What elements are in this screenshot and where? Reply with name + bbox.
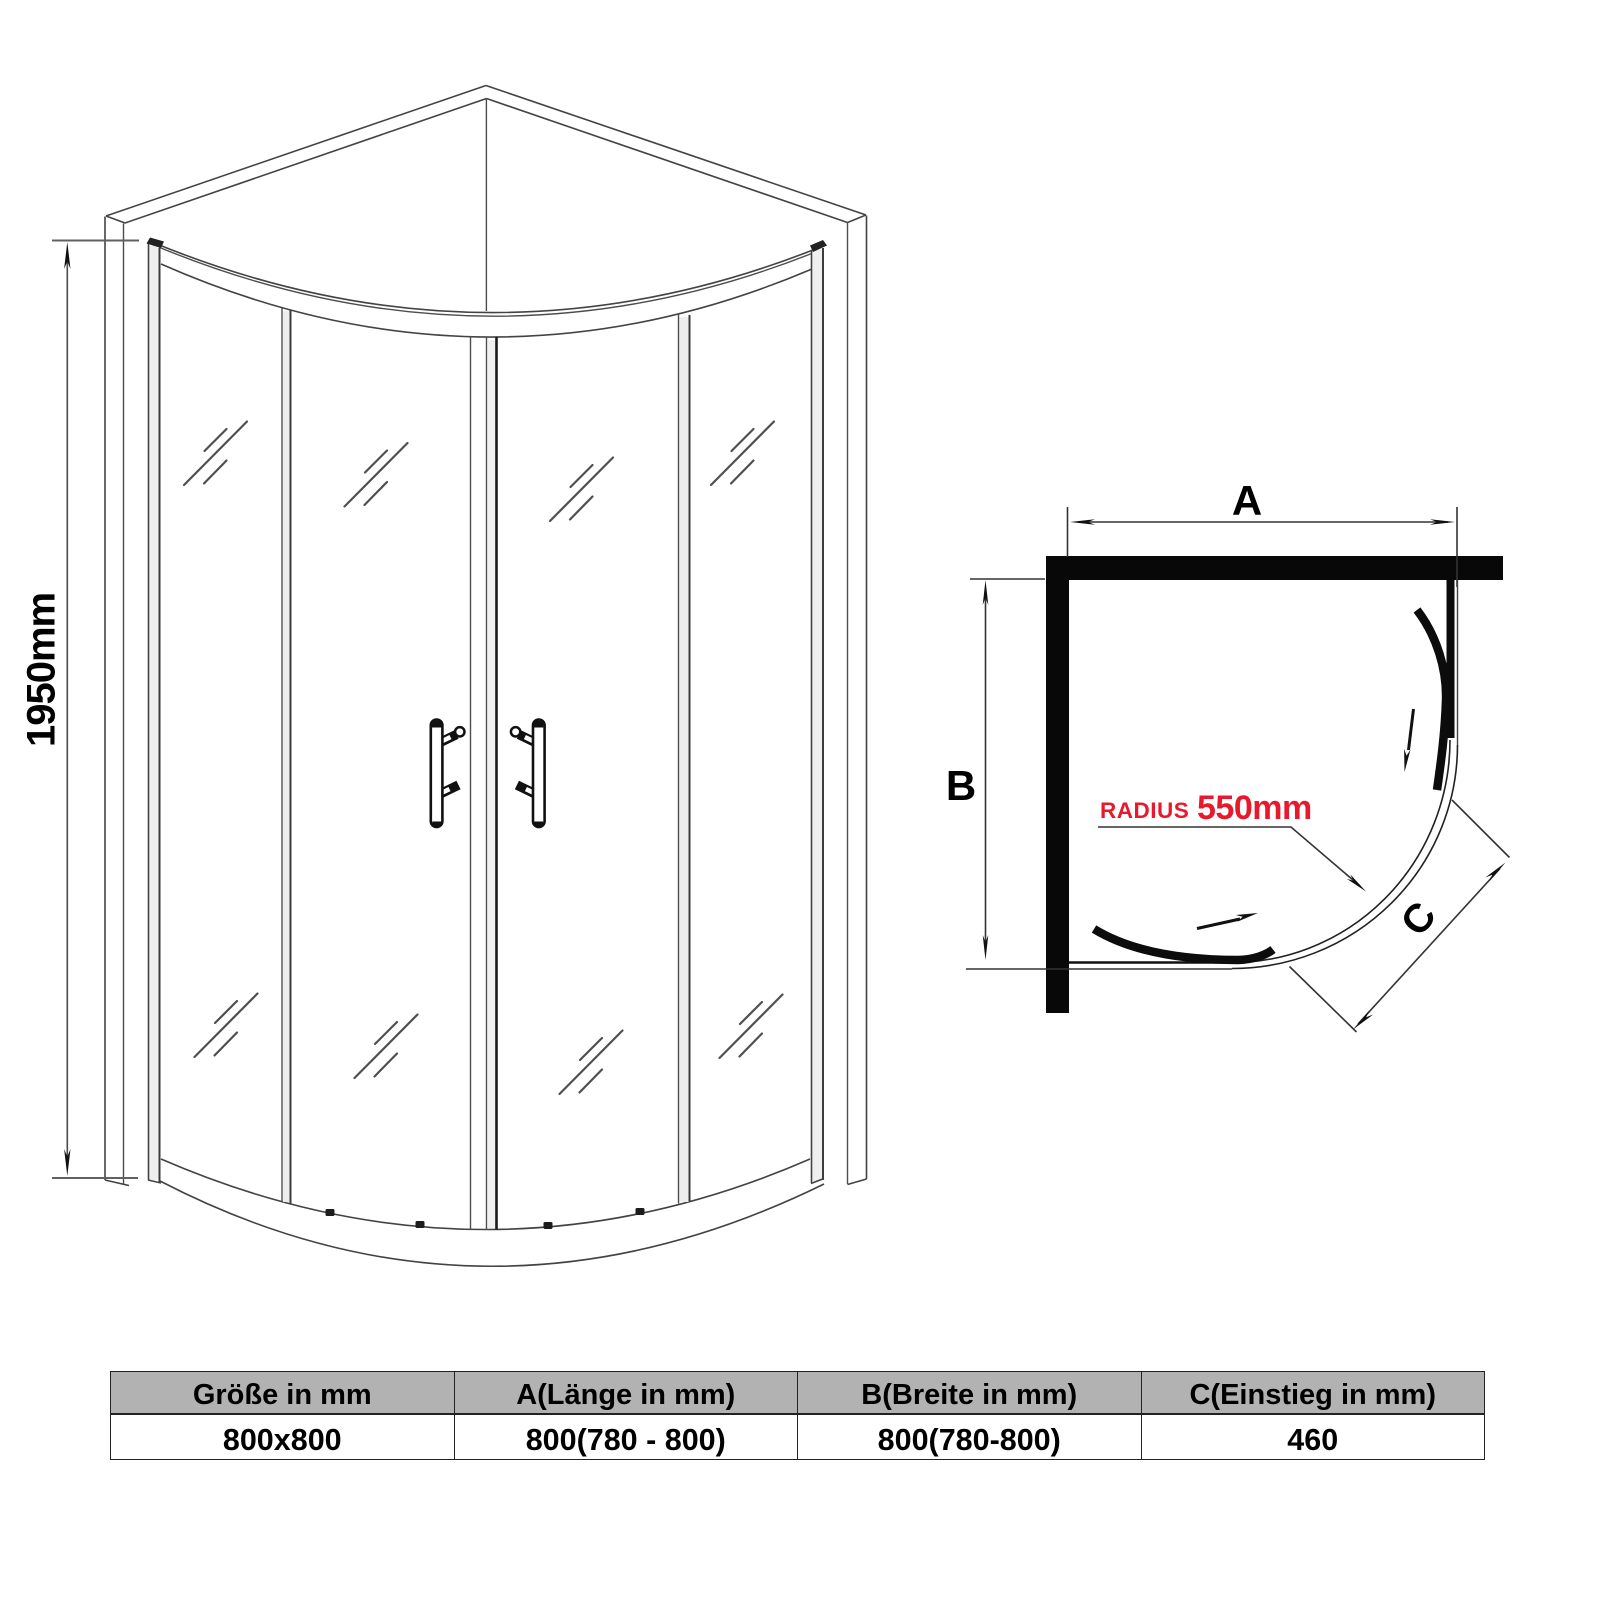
svg-text:A: A	[1232, 477, 1262, 524]
svg-text:RADIUS: RADIUS	[1100, 798, 1189, 823]
svg-text:B: B	[946, 762, 976, 809]
svg-text:550mm: 550mm	[1197, 789, 1312, 827]
svg-text:1950mm: 1950mm	[20, 593, 64, 747]
